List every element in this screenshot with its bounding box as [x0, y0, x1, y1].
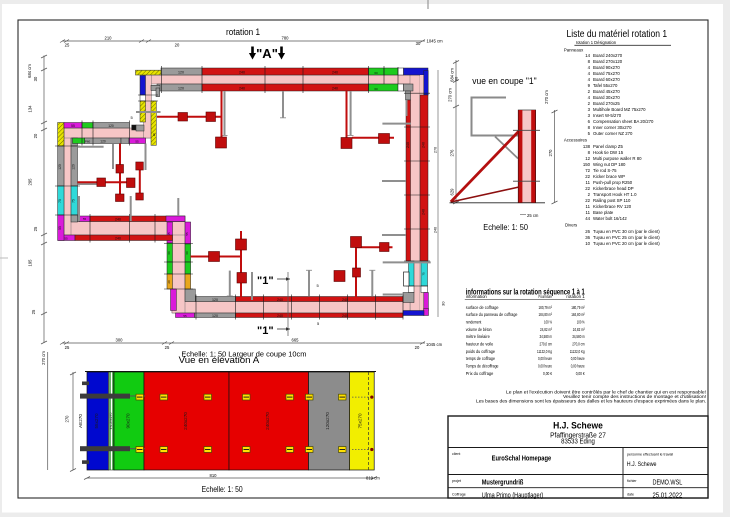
svg-text:55: 55: [185, 232, 189, 236]
svg-text:information: information: [466, 294, 488, 299]
svg-text:Tuyau en PVC 20 cm (par le cli: Tuyau en PVC 20 cm (par le client): [593, 241, 660, 246]
svg-text:Water bolt 16/142: Water bolt 16/142: [593, 216, 627, 221]
svg-text:25 cm: 25 cm: [527, 213, 539, 218]
svg-text:60: 60: [374, 71, 378, 75]
svg-text:volume de béton: volume de béton: [466, 327, 492, 332]
svg-text:240: 240: [422, 209, 426, 215]
svg-text:Outer corner NZ 270: Outer corner NZ 270: [593, 131, 633, 136]
svg-text:25: 25: [165, 345, 170, 350]
svg-text:30: 30: [441, 301, 446, 306]
svg-text:20: 20: [167, 280, 171, 284]
svg-text:11: 11: [586, 180, 591, 185]
svg-text:34,580 m: 34,580 m: [540, 334, 553, 339]
svg-text:780: 780: [282, 36, 290, 41]
svg-text:0,00 €: 0,00 €: [576, 371, 585, 376]
svg-text:Tuyau en PVC 25 cm (par le cli: Tuyau en PVC 25 cm (par le client): [593, 235, 660, 240]
svg-text:Temps de décoffrage: Temps de décoffrage: [466, 364, 499, 369]
svg-text:Ins-20x270: Ins-20x270: [109, 413, 113, 430]
svg-text:Vue en élévation A: Vue en élévation A: [179, 355, 261, 365]
svg-text:rotation 1 Désignation: rotation 1 Désignation: [576, 40, 617, 45]
svg-text:60: 60: [185, 251, 189, 255]
svg-text:120: 120: [72, 164, 76, 170]
svg-text:270: 270: [548, 149, 553, 157]
svg-text:"1": "1": [257, 325, 274, 337]
svg-text:Compensation sheet BA 20/270: Compensation sheet BA 20/270: [593, 119, 654, 124]
svg-text:Panneaux: Panneaux: [564, 47, 584, 52]
svg-text:120x270: 120x270: [325, 412, 330, 430]
svg-text:temps de coffrage: temps de coffrage: [466, 356, 496, 361]
svg-text:"1": "1": [257, 275, 274, 287]
svg-text:665: 665: [292, 338, 300, 343]
svg-text:Liste du matériel rotation 1: Liste du matériel rotation 1: [567, 29, 668, 40]
svg-text:120: 120: [100, 140, 106, 144]
svg-text:20: 20: [175, 43, 180, 48]
svg-text:10: 10: [585, 241, 590, 246]
svg-text:0,00 €: 0,00 €: [543, 371, 552, 376]
svg-text:240: 240: [115, 237, 121, 241]
svg-text:270 cm: 270 cm: [544, 90, 549, 104]
svg-text:138: 138: [583, 144, 591, 149]
svg-text:120: 120: [212, 298, 218, 302]
svg-text:Kickerbrace RV 120: Kickerbrace RV 120: [593, 204, 632, 209]
svg-text:75: 75: [72, 199, 76, 203]
svg-text:Coffrage: Coffrage: [452, 493, 466, 497]
svg-text:240: 240: [239, 87, 245, 91]
svg-text:Board 60x270: Board 60x270: [593, 77, 620, 82]
svg-text:24,82 m³: 24,82 m³: [540, 327, 552, 332]
svg-text:100 %: 100 %: [544, 320, 552, 325]
svg-text:240: 240: [342, 314, 348, 318]
svg-text:Accessoires: Accessoires: [564, 138, 587, 143]
svg-text:Board 240x270: Board 240x270: [593, 53, 623, 58]
svg-text:0,00 heure: 0,00 heure: [571, 364, 585, 369]
svg-text:projet: projet: [452, 479, 461, 483]
svg-text:60: 60: [167, 251, 171, 255]
svg-text:25: 25: [31, 309, 36, 314]
svg-text:184,80 m²: 184,80 m²: [539, 312, 553, 317]
svg-text:180,79 m²: 180,79 m²: [539, 305, 553, 310]
svg-text:150: 150: [583, 162, 591, 167]
svg-text:120: 120: [108, 124, 114, 128]
svg-text:295: 295: [28, 178, 33, 186]
svg-text:Board 270x25: Board 270x25: [593, 101, 620, 106]
svg-text:rotation 1: rotation 1: [226, 27, 260, 37]
svg-text:120: 120: [178, 71, 184, 75]
svg-text:22: 22: [585, 174, 590, 179]
svg-text:11132,0 Kg: 11132,0 Kg: [570, 349, 585, 354]
svg-text:240: 240: [422, 142, 426, 148]
svg-text:240: 240: [434, 227, 438, 233]
svg-text:276: 276: [450, 149, 455, 157]
svg-text:55: 55: [183, 314, 187, 318]
svg-text:810 cm: 810 cm: [366, 476, 380, 481]
svg-text:270 cm: 270 cm: [448, 88, 453, 102]
svg-text:EuroSchal Homepage: EuroSchal Homepage: [492, 456, 552, 463]
svg-text:Kicker brace WP: Kicker brace WP: [593, 174, 625, 179]
svg-text:55x270: 55x270: [94, 413, 99, 429]
svg-text:Railing post SP 110: Railing post SP 110: [593, 198, 631, 203]
svg-text:684 cm: 684 cm: [27, 64, 32, 78]
svg-text:629: 629: [450, 188, 455, 196]
svg-text:Insert W-5/270: Insert W-5/270: [593, 113, 622, 118]
svg-text:12: 12: [585, 156, 590, 161]
svg-text:Kickerbrace head DP: Kickerbrace head DP: [593, 186, 634, 191]
svg-text:30: 30: [416, 41, 421, 46]
svg-text:34,580 m: 34,580 m: [572, 334, 585, 339]
svg-text:client: client: [452, 452, 460, 456]
svg-text:mètre linéaire: mètre linéaire: [466, 334, 490, 339]
svg-text:Multi purpose waller R 80: Multi purpose waller R 80: [593, 156, 642, 161]
svg-text:Tafel 55x270: Tafel 55x270: [593, 83, 618, 88]
svg-text:Les bases des dimensions sont: Les bases des dimensions sont les épaiss…: [476, 399, 706, 404]
svg-text:184,80 m²: 184,80 m²: [571, 312, 585, 317]
svg-text:Divers: Divers: [565, 222, 577, 227]
svg-text:180,79 m²: 180,79 m²: [571, 305, 585, 310]
svg-text:240x270: 240x270: [183, 412, 188, 430]
svg-text:surface du panneau de coffrage: surface du panneau de coffrage: [466, 312, 518, 317]
svg-text:240: 240: [115, 218, 121, 222]
svg-text:Wing nut DP 180: Wing nut DP 180: [593, 162, 626, 167]
svg-text:24,82 m³: 24,82 m³: [573, 327, 585, 332]
svg-text:22: 22: [585, 198, 590, 203]
svg-text:Echelle: 1: 50: Echelle: 1: 50: [202, 485, 244, 494]
svg-text:hauteur de voile: hauteur de voile: [466, 342, 494, 347]
svg-text:120: 120: [58, 164, 62, 170]
svg-text:DEMO.WSL: DEMO.WSL: [653, 480, 683, 487]
svg-text:240: 240: [239, 71, 245, 75]
svg-text:"A": "A": [256, 46, 278, 61]
svg-text:Push-pull prop R250: Push-pull prop R250: [593, 180, 633, 185]
svg-text:72: 72: [585, 168, 590, 173]
svg-text:240: 240: [406, 142, 410, 148]
svg-text:P60: P60: [85, 139, 91, 143]
svg-text:270: 270: [65, 415, 70, 423]
svg-text:Echelle: 1: 50: Echelle: 1: 50: [483, 223, 528, 232]
svg-text:25.01.2022: 25.01.2022: [653, 493, 683, 500]
svg-text:14: 14: [585, 53, 590, 58]
svg-text:fichier: fichier: [627, 479, 637, 483]
svg-text:26: 26: [585, 229, 590, 234]
svg-text:75: 75: [422, 272, 426, 276]
svg-text:810: 810: [210, 473, 218, 478]
svg-text:Mustergrundriß: Mustergrundriß: [482, 480, 524, 487]
svg-text:55: 55: [58, 226, 62, 230]
svg-text:270 cm: 270 cm: [41, 351, 46, 365]
svg-text:11: 11: [586, 204, 591, 209]
svg-text:Ulma Primo (Hauptlager): Ulma Primo (Hauptlager): [482, 493, 544, 500]
svg-text:0,00 heure: 0,00 heure: [538, 364, 552, 369]
svg-text:20: 20: [415, 345, 420, 350]
svg-text:Board 45x270: Board 45x270: [593, 89, 620, 94]
svg-text:rotation 1: rotation 1: [566, 294, 585, 299]
svg-text:11132,0 Kg: 11132,0 Kg: [537, 349, 552, 354]
svg-text:240: 240: [342, 298, 348, 302]
svg-text:20: 20: [33, 133, 38, 138]
svg-text:Board 75x270: Board 75x270: [593, 71, 620, 76]
svg-text:240: 240: [277, 298, 283, 302]
svg-text:100 %: 100 %: [577, 320, 585, 325]
svg-text:75x270: 75x270: [358, 413, 363, 429]
svg-text:1045 cm: 1045 cm: [426, 342, 443, 347]
svg-text:44: 44: [585, 216, 590, 221]
svg-text:240x270: 240x270: [265, 412, 270, 430]
svg-text:60: 60: [374, 87, 378, 91]
svg-text:rendement: rendement: [466, 320, 482, 325]
svg-text:Multihole Board MZ 75x270: Multihole Board MZ 75x270: [593, 107, 646, 112]
svg-text:30: 30: [33, 76, 38, 81]
svg-text:134: 134: [28, 105, 33, 113]
svg-text:270,0 cm: 270,0 cm: [540, 342, 553, 347]
svg-text:83533 Eding: 83533 Eding: [561, 439, 595, 446]
svg-text:22: 22: [585, 186, 590, 191]
svg-text:25: 25: [65, 43, 70, 48]
svg-text:AE270: AE270: [78, 414, 83, 428]
svg-text:Board 30x270: Board 30x270: [593, 95, 620, 100]
svg-text:Inner corner 30x270: Inner corner 30x270: [593, 125, 632, 130]
svg-text:personne effectuant le travail: personne effectuant le travail: [627, 452, 673, 456]
svg-text:Fourniture: Fourniture: [539, 294, 553, 299]
svg-text:25: 25: [33, 226, 38, 231]
svg-text:90x270: 90x270: [126, 413, 131, 429]
svg-text:75: 75: [58, 199, 62, 203]
svg-text:1045 cm: 1045 cm: [427, 39, 444, 44]
svg-text:11: 11: [586, 210, 591, 215]
svg-text:0,00 heure: 0,00 heure: [538, 356, 552, 361]
svg-text:0,00 heure: 0,00 heure: [571, 356, 585, 361]
svg-text:120: 120: [212, 314, 218, 318]
svg-text:240: 240: [277, 314, 283, 318]
svg-text:55: 55: [135, 139, 139, 143]
svg-text:240: 240: [332, 71, 338, 75]
svg-text:55: 55: [83, 217, 87, 221]
svg-text:poids du coffrage: poids du coffrage: [466, 349, 496, 354]
svg-text:240: 240: [332, 87, 338, 91]
svg-text:Prix du coffrage: Prix du coffrage: [466, 371, 494, 376]
svg-text:36: 36: [585, 235, 590, 240]
svg-text:Hook tie DW 15: Hook tie DW 15: [593, 150, 624, 155]
svg-text:Panel clamp Z5: Panel clamp Z5: [593, 144, 623, 149]
svg-text:270,0 cm: 270,0 cm: [572, 342, 585, 347]
svg-text:Board 90x270: Board 90x270: [593, 65, 620, 70]
svg-text:H.J. Schewe: H.J. Schewe: [627, 461, 657, 468]
svg-text:55: 55: [71, 124, 75, 128]
svg-text:300: 300: [116, 338, 124, 343]
svg-text:surface de coffrage: surface de coffrage: [466, 305, 499, 310]
svg-text:Tuyau en PVC 30 cm (par le cli: Tuyau en PVC 30 cm (par le client): [593, 229, 660, 234]
svg-text:270: 270: [434, 147, 438, 153]
svg-text:55: 55: [64, 237, 68, 241]
svg-text:Base plate: Base plate: [593, 210, 614, 215]
svg-text:25: 25: [65, 345, 70, 350]
svg-text:H.J. Schewe: H.J. Schewe: [553, 421, 603, 432]
svg-text:Tie rod S-75: Tie rod S-75: [593, 168, 617, 173]
svg-text:Transport Hook HT 1.0: Transport Hook HT 1.0: [593, 192, 637, 197]
svg-text:210: 210: [105, 36, 113, 41]
svg-text:vue en coupe "1": vue en coupe "1": [472, 76, 536, 87]
svg-text:Board 270x120: Board 270x120: [593, 59, 623, 64]
svg-text:120: 120: [178, 87, 184, 91]
svg-text:date: date: [627, 493, 634, 497]
svg-text:195: 195: [28, 259, 33, 267]
svg-text:30: 30: [454, 76, 459, 81]
